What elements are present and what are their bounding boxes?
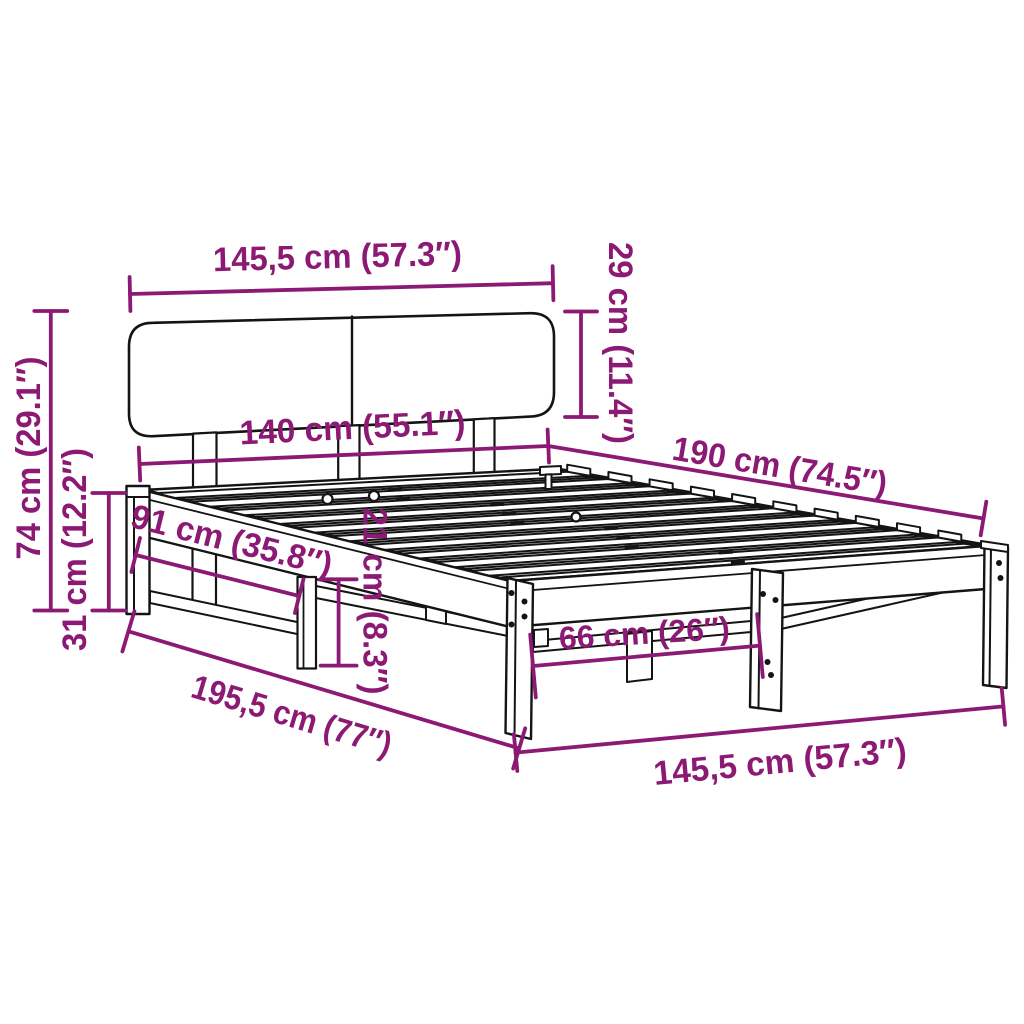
svg-text:31 cm (12.2″): 31 cm (12.2″) — [56, 448, 94, 651]
svg-text:74 cm (29.1″): 74 cm (29.1″) — [10, 357, 48, 560]
svg-text:21 cm (8.3″): 21 cm (8.3″) — [356, 508, 394, 695]
svg-text:145,5 cm (57.3″): 145,5 cm (57.3″) — [212, 235, 462, 280]
svg-text:29 cm (11.4″): 29 cm (11.4″) — [601, 242, 639, 444]
